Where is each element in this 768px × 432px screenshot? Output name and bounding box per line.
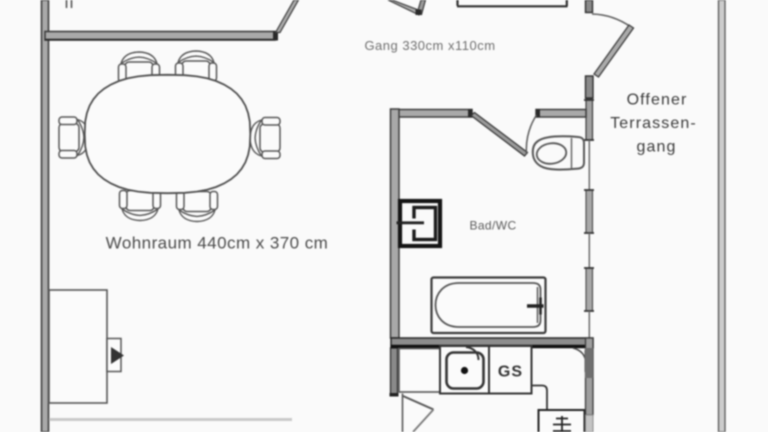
svg-text:Bad/WC: Bad/WC	[469, 219, 516, 233]
svg-text:GS: GS	[498, 364, 523, 381]
svg-text:Terrassen-: Terrassen-	[610, 115, 697, 132]
svg-text:gang: gang	[637, 139, 677, 156]
svg-text:Wohnraum 440cm x 370 cm: Wohnraum 440cm x 370 cm	[106, 234, 329, 253]
svg-text:Offener: Offener	[627, 92, 688, 109]
svg-text:Gang 330cm x110cm: Gang 330cm x110cm	[364, 38, 495, 53]
